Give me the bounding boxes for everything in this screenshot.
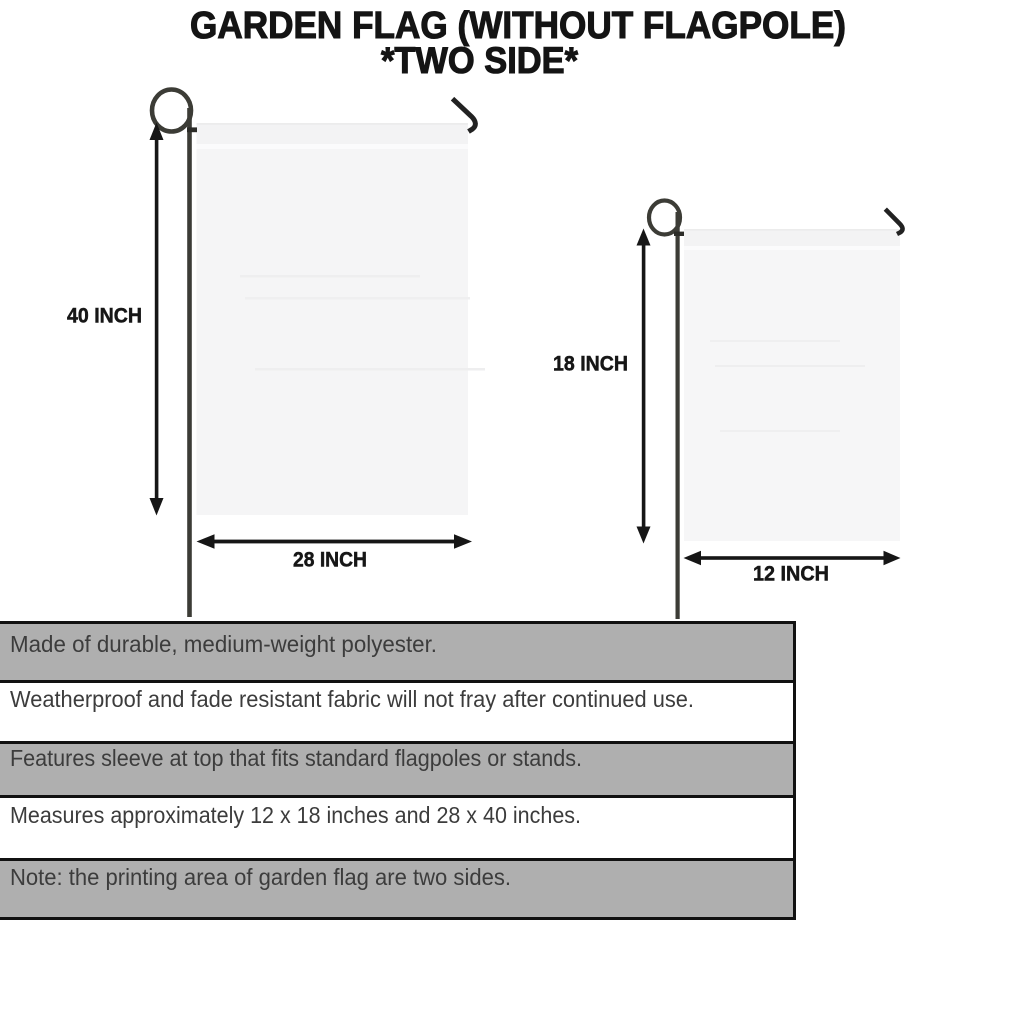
svg-text:12 INCH: 12 INCH xyxy=(753,563,829,586)
svg-text:40 INCH: 40 INCH xyxy=(67,305,142,328)
svg-text:Measures approximately 12 x 18: Measures approximately 12 x 18 inches an… xyxy=(10,802,581,828)
svg-text:Weatherproof and fade resistan: Weatherproof and fade resistant fabric w… xyxy=(10,686,694,712)
svg-text:28 INCH: 28 INCH xyxy=(293,549,367,572)
svg-text:18 INCH: 18 INCH xyxy=(553,353,628,376)
svg-text:Note: the printing area of gar: Note: the printing area of garden flag a… xyxy=(10,864,511,890)
svg-text:*TWO SIDE*: *TWO SIDE* xyxy=(381,40,579,81)
svg-text:Made of durable, medium-weight: Made of durable, medium-weight polyester… xyxy=(10,631,437,657)
svg-text:Features sleeve at top that fi: Features sleeve at top that fits standar… xyxy=(10,745,582,771)
